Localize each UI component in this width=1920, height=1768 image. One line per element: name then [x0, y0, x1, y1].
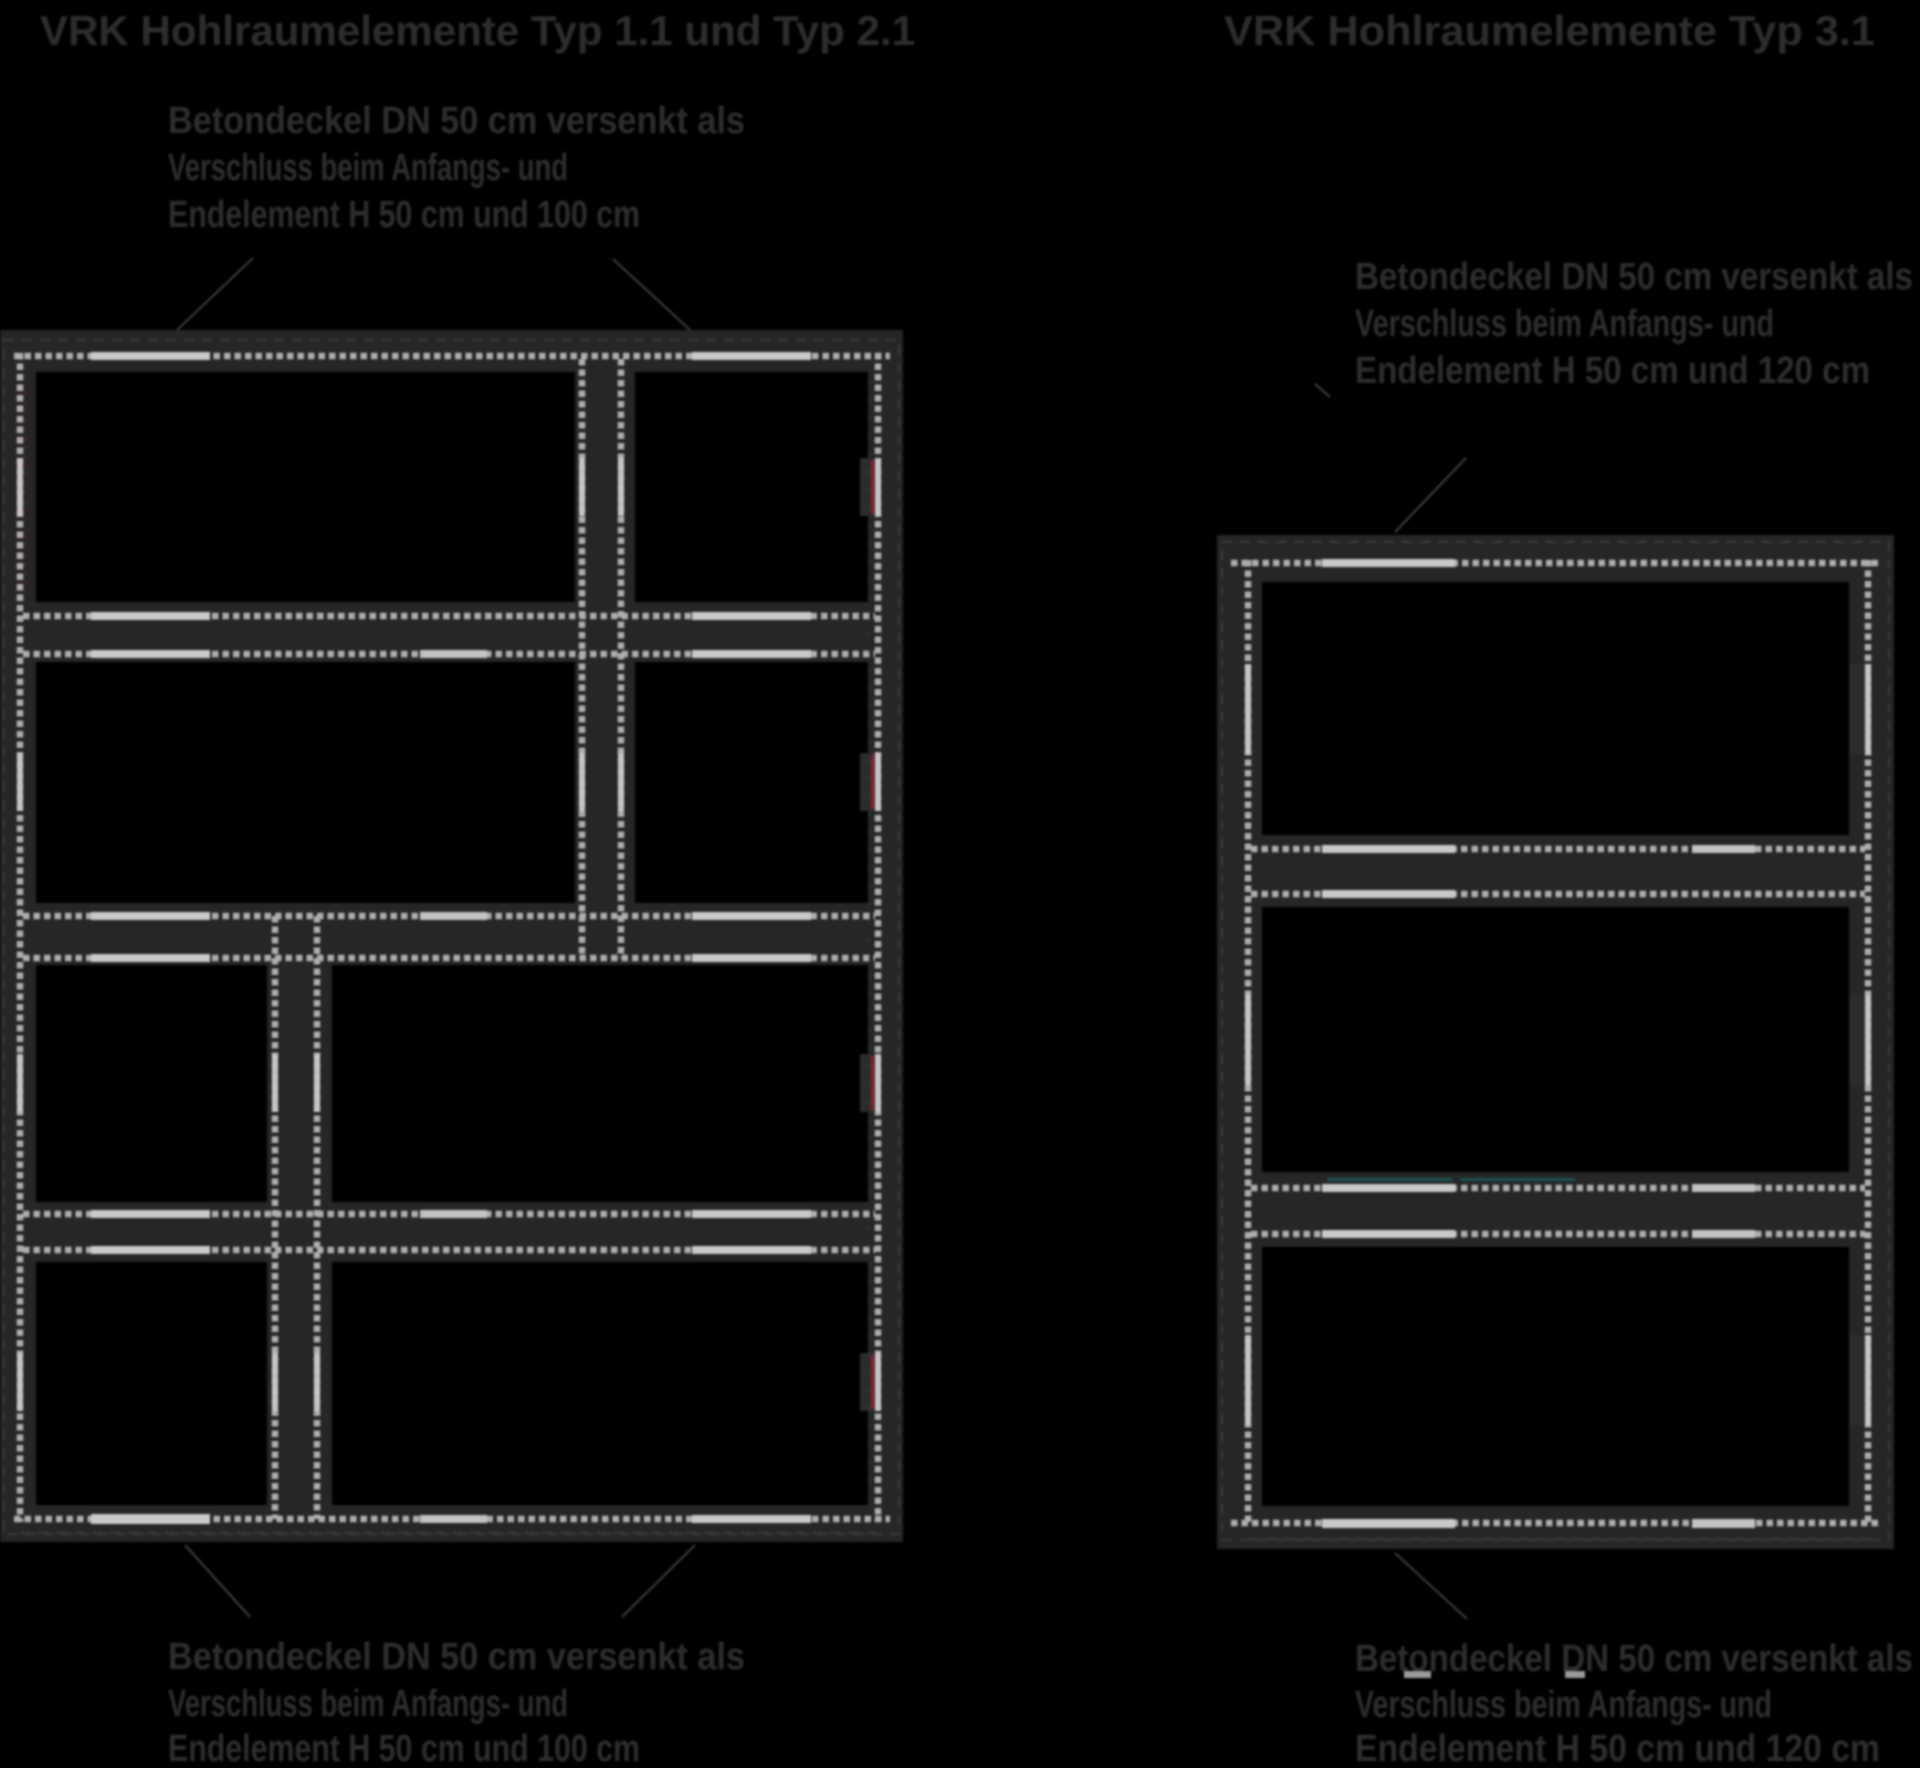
svg-text:VRK Hohlraumelemente Typ 1.1 u: VRK Hohlraumelemente Typ 1.1 und Typ 2.1: [40, 7, 915, 54]
svg-text:Betondeckel DN 50 cm versenkt: Betondeckel DN 50 cm versenkt als: [168, 1636, 745, 1678]
svg-text:Endelement H 50 cm und 120 cm: Endelement H 50 cm und 120 cm: [1355, 1728, 1880, 1768]
svg-text:Betondeckel DN 50 cm versenkt: Betondeckel DN 50 cm versenkt als: [168, 100, 745, 142]
svg-text:Verschluss beim Anfangs- und: Verschluss beim Anfangs- und: [1355, 303, 1774, 345]
svg-text:VRK Hohlraumelemente Typ 3.1: VRK Hohlraumelemente Typ 3.1: [1224, 7, 1875, 54]
svg-text:Betondeckel DN 50 cm versenkt: Betondeckel DN 50 cm versenkt als: [1355, 1638, 1913, 1680]
svg-text:Endelement H 50 cm und 100 cm: Endelement H 50 cm und 100 cm: [168, 194, 640, 236]
svg-text:Endelement H 50 cm und 100 cm: Endelement H 50 cm und 100 cm: [168, 1728, 640, 1768]
svg-text:Verschluss beim Anfangs- und: Verschluss beim Anfangs- und: [168, 1683, 568, 1725]
svg-text:Endelement H 50 cm und 120 cm: Endelement H 50 cm und 120 cm: [1355, 350, 1870, 392]
svg-text:Verschluss beim Anfangs- und: Verschluss beim Anfangs- und: [168, 147, 568, 189]
svg-text:Verschluss beim Anfangs- und: Verschluss beim Anfangs- und: [1355, 1684, 1772, 1726]
svg-text:Betondeckel DN 50 cm versenkt: Betondeckel DN 50 cm versenkt als: [1355, 256, 1913, 298]
